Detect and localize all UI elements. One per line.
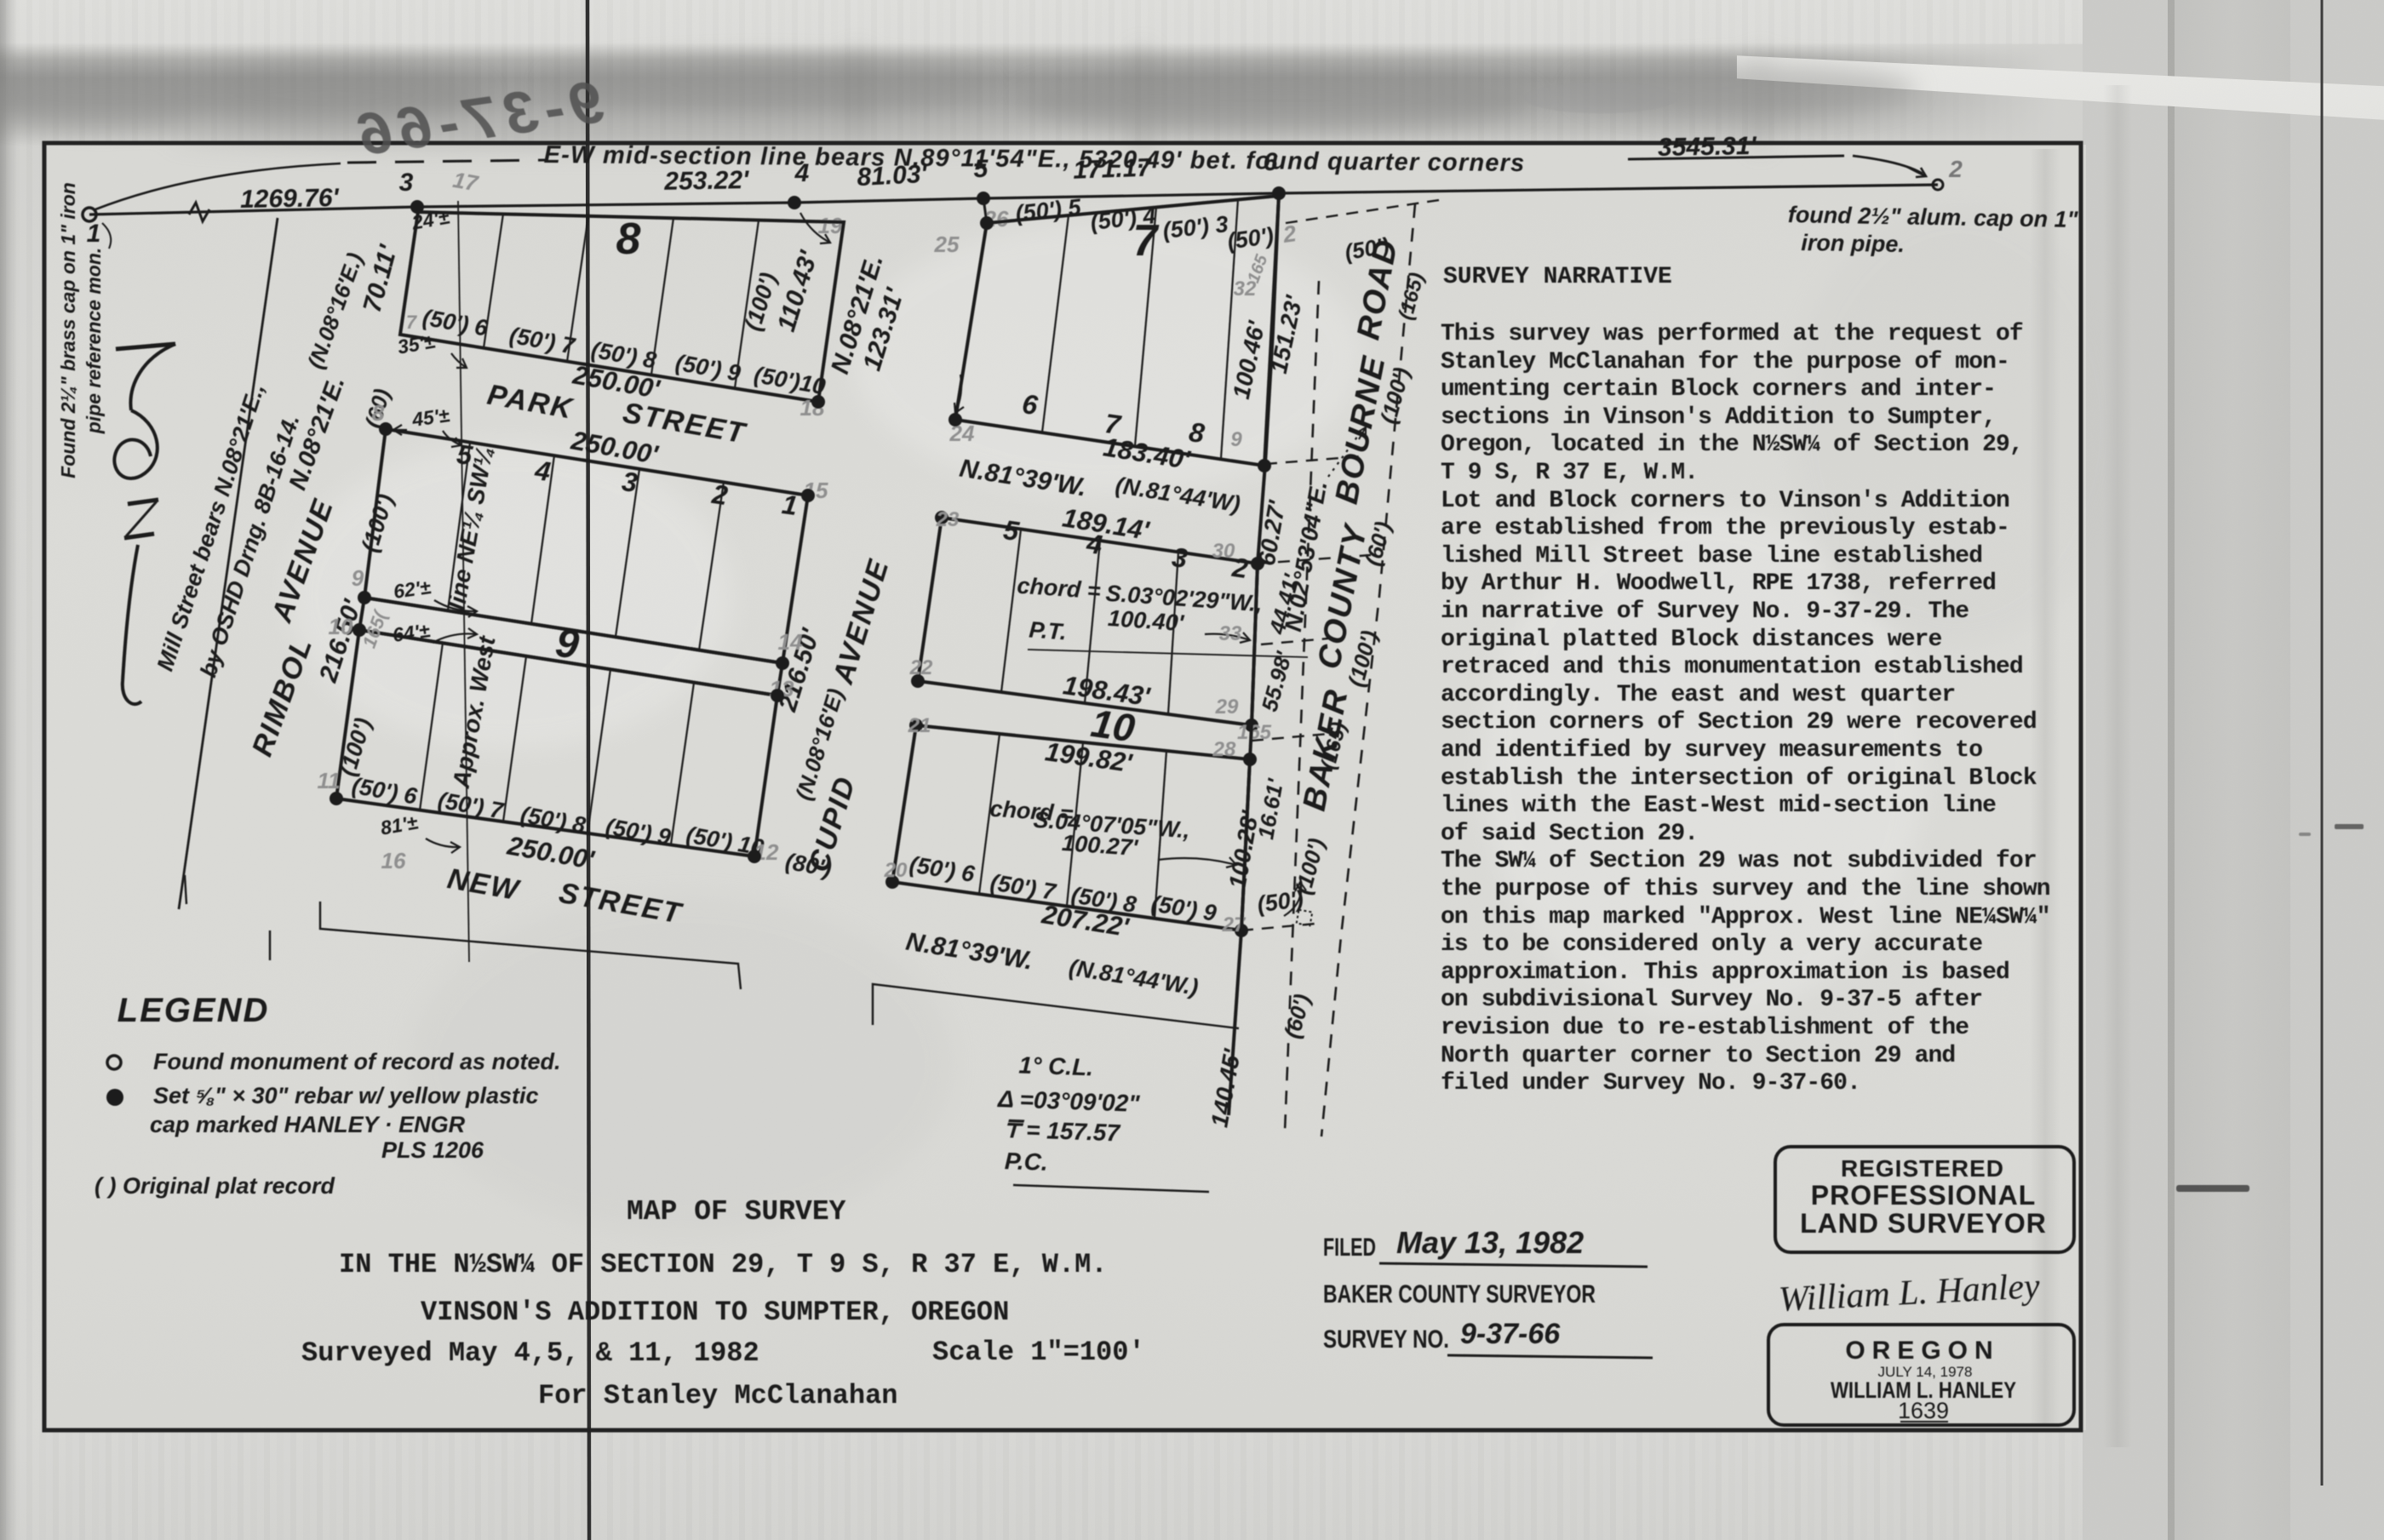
svg-text:1269.76': 1269.76' xyxy=(240,184,340,214)
svg-text:₸ = 157.57: ₸ = 157.57 xyxy=(1004,1116,1121,1147)
svg-text:Set ⅝" × 30" rebar w/ yellow p: Set ⅝" × 30" rebar w/ yellow plastic xyxy=(153,1083,539,1108)
svg-text:is to be considered only a ver: is to be considered only a very accurate xyxy=(1441,931,1982,958)
svg-text:3545.31': 3545.31' xyxy=(1658,132,1757,162)
svg-text:LEGEND: LEGEND xyxy=(117,992,270,1029)
svg-text:14: 14 xyxy=(778,629,803,655)
svg-text:9: 9 xyxy=(352,565,364,591)
svg-text:on this map marked "Approx. We: on this map marked "Approx. West line NE… xyxy=(1441,904,2050,930)
svg-text:1: 1 xyxy=(87,220,101,248)
svg-text:pipe reference mon.: pipe reference mon. xyxy=(83,248,105,435)
svg-text:by Arthur H. Woodwell, RPE 173: by Arthur H. Woodwell, RPE 1738, referre… xyxy=(1441,570,1996,597)
svg-text:7: 7 xyxy=(406,312,418,333)
svg-text:9-37-66: 9-37-66 xyxy=(1460,1318,1561,1350)
svg-text:establish the intersection of: establish the intersection of original B… xyxy=(1441,765,2037,792)
svg-text:May 13, 1982: May 13, 1982 xyxy=(1396,1225,1584,1260)
svg-text:BAKER COUNTY SURVEYOR: BAKER COUNTY SURVEYOR xyxy=(1323,1280,1596,1308)
svg-text:Found monument of record as no: Found monument of record as noted. xyxy=(153,1049,561,1074)
svg-text:100.27': 100.27' xyxy=(1061,830,1139,861)
svg-text:33: 33 xyxy=(1219,622,1242,645)
svg-text:LAND SURVEYOR: LAND SURVEYOR xyxy=(1800,1208,2047,1239)
svg-text:and identified by survey measu: and identified by survey measurements to xyxy=(1441,737,1982,764)
svg-text:cap marked HANLEY · ENGR: cap marked HANLEY · ENGR xyxy=(150,1112,466,1137)
svg-text:1639: 1639 xyxy=(1898,1398,1949,1423)
svg-text:T 9 S, R 37 E, W.M.: T 9 S, R 37 E, W.M. xyxy=(1441,460,1698,486)
svg-text:Stanley McClanahan for the pur: Stanley McClanahan for the purpose of mo… xyxy=(1441,349,2009,375)
svg-text:accordingly. The east and west: accordingly. The east and west quarter xyxy=(1441,682,1955,708)
svg-text:lished Mill Street base line e: lished Mill Street base line established xyxy=(1441,543,1982,570)
svg-text:IN THE N½SW¼ OF SECTION 29, T: IN THE N½SW¼ OF SECTION 29, T 9 S, R 37 … xyxy=(339,1249,1108,1280)
svg-text:approximation. This approximat: approximation. This approximation is bas… xyxy=(1441,959,2009,986)
svg-text:10: 10 xyxy=(329,614,353,639)
svg-text:of said Section 29.: of said Section 29. xyxy=(1441,821,1698,847)
svg-text:6: 6 xyxy=(1264,148,1278,176)
svg-text:OREGON: OREGON xyxy=(1845,1337,1999,1365)
svg-text:on subdivisional Survey No. 9-: on subdivisional Survey No. 9-37-5 after xyxy=(1441,987,1982,1013)
svg-text:The SW¼ of Section 29 was not: The SW¼ of Section 29 was not subdivided… xyxy=(1441,848,2037,874)
svg-text:8: 8 xyxy=(372,400,385,426)
svg-text:in narrative of Survey No. 9-3: in narrative of Survey No. 9-37-29. The xyxy=(1441,598,1969,625)
svg-text:Found 2¼" brass cap on 1" iron: Found 2¼" brass cap on 1" iron xyxy=(57,182,79,478)
svg-text:30: 30 xyxy=(1212,540,1235,563)
svg-text:are established from the previ: are established from the previously esta… xyxy=(1441,515,2009,541)
svg-text:MAP OF SURVEY: MAP OF SURVEY xyxy=(627,1196,846,1228)
svg-text:Δ =03°09'02": Δ =03°09'02" xyxy=(997,1085,1141,1117)
svg-text:253.22': 253.22' xyxy=(663,166,749,196)
svg-text:8: 8 xyxy=(616,215,641,264)
svg-text:umenting certain Block corners: umenting certain Block corners and inter… xyxy=(1441,376,1996,403)
svg-text:16: 16 xyxy=(381,848,406,873)
svg-text:For Stanley McClanahan: For Stanley McClanahan xyxy=(538,1380,897,1411)
svg-text:original platted Block distanc: original platted Block distances were xyxy=(1441,627,1941,653)
svg-text:19: 19 xyxy=(818,213,843,238)
svg-text:3: 3 xyxy=(399,169,414,197)
svg-text:filed under Survey No. 9-37-60: filed under Survey No. 9-37-60. xyxy=(1441,1070,1860,1096)
svg-text:29: 29 xyxy=(1215,696,1239,718)
svg-text:This survey was performed at t: This survey was performed at the request… xyxy=(1441,321,2023,347)
svg-text:found 2½" alum. cap on 1": found 2½" alum. cap on 1" xyxy=(1788,202,2079,232)
svg-text:25: 25 xyxy=(934,232,960,257)
svg-text:4: 4 xyxy=(794,159,810,187)
svg-text:lines with the East-West mid-s: lines with the East-West mid-section lin… xyxy=(1441,793,1996,819)
svg-text:22: 22 xyxy=(909,656,933,679)
svg-text:( ) Original plat record: ( ) Original plat record xyxy=(95,1173,335,1199)
svg-text:SURVEY NARRATIVE: SURVEY NARRATIVE xyxy=(1443,264,1672,290)
svg-text:sections in Vinson's Addition: sections in Vinson's Addition to Sumpter… xyxy=(1441,404,1996,431)
svg-text:20: 20 xyxy=(884,859,908,882)
svg-text:section corners of Section 29: section corners of Section 29 were recov… xyxy=(1441,709,2037,736)
svg-text:23: 23 xyxy=(936,508,960,531)
svg-text:PROFESSIONAL: PROFESSIONAL xyxy=(1811,1180,2036,1211)
svg-text:Oregon, located in the N½SW¼ o: Oregon, located in the N½SW¼ of Section … xyxy=(1441,432,2023,458)
svg-text:REGISTERED: REGISTERED xyxy=(1841,1155,2004,1182)
svg-text:Lot and Block corners to Vinso: Lot and Block corners to Vinson's Additi… xyxy=(1441,488,2009,514)
svg-text:the purpose of this survey and: the purpose of this survey and the line … xyxy=(1441,876,2050,902)
svg-text:Scale 1"=100': Scale 1"=100' xyxy=(932,1337,1145,1368)
svg-text:81.03': 81.03' xyxy=(857,160,929,192)
svg-text:21: 21 xyxy=(908,714,931,737)
svg-text:171.17': 171.17' xyxy=(1073,153,1159,184)
svg-text:revision due to re-establishme: revision due to re-establishment of the xyxy=(1441,1015,1969,1041)
svg-text:P.T.: P.T. xyxy=(1029,617,1068,645)
svg-text:Surveyed May 4,5, & 11, 1982: Surveyed May 4,5, & 11, 1982 xyxy=(301,1337,759,1369)
svg-text:SURVEY NO.: SURVEY NO. xyxy=(1323,1325,1449,1354)
svg-text:North quarter corner to Sectio: North quarter corner to Section 29 and xyxy=(1441,1043,1955,1069)
svg-text:iron pipe.: iron pipe. xyxy=(1801,230,1905,257)
svg-text:VINSON'S ADDITION TO SUMPTER,: VINSON'S ADDITION TO SUMPTER, OREGON xyxy=(421,1297,1009,1328)
svg-text:1° C.L.: 1° C.L. xyxy=(1018,1051,1093,1080)
svg-text:9: 9 xyxy=(1230,428,1242,451)
svg-text:FILED: FILED xyxy=(1323,1234,1376,1262)
svg-text:5: 5 xyxy=(974,155,989,183)
svg-text:11: 11 xyxy=(318,768,341,793)
svg-text:28: 28 xyxy=(1212,738,1236,761)
svg-text:2: 2 xyxy=(1948,156,1963,182)
svg-text:100.40': 100.40' xyxy=(1107,605,1185,636)
svg-text:retraced and this monumentatio: retraced and this monumentation establis… xyxy=(1441,654,2023,680)
svg-text:PLS 1206: PLS 1206 xyxy=(381,1137,484,1163)
svg-text:P.C.: P.C. xyxy=(1004,1148,1048,1176)
